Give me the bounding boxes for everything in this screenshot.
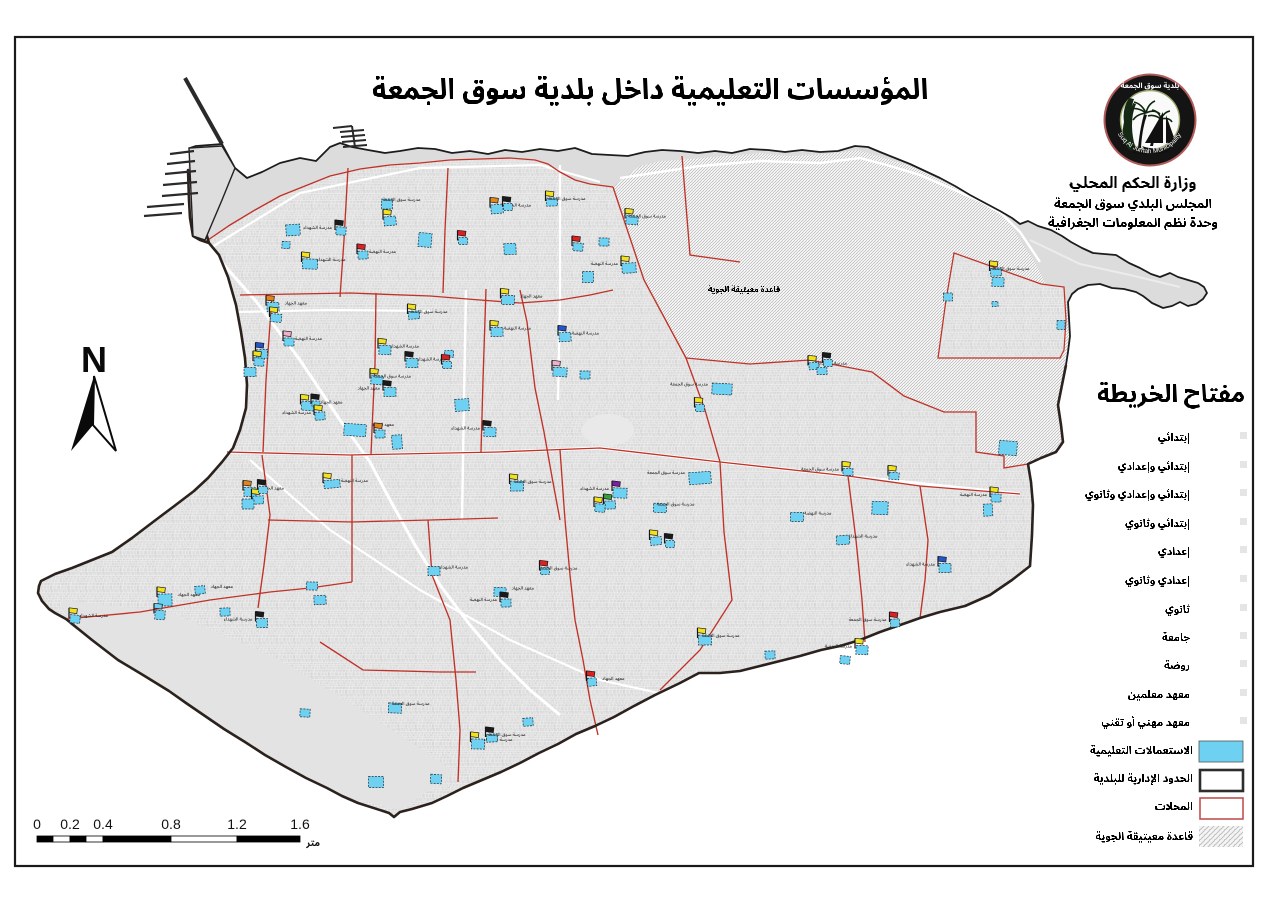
svg-text:0.4: 0.4 xyxy=(93,816,113,832)
svg-text:0.2: 0.2 xyxy=(60,816,80,832)
svg-text:N: N xyxy=(81,339,107,380)
svg-text:0.8: 0.8 xyxy=(161,816,181,832)
svg-text:0: 0 xyxy=(33,816,41,832)
svg-text:1.2: 1.2 xyxy=(227,816,247,832)
svg-text:1.6: 1.6 xyxy=(290,816,310,832)
